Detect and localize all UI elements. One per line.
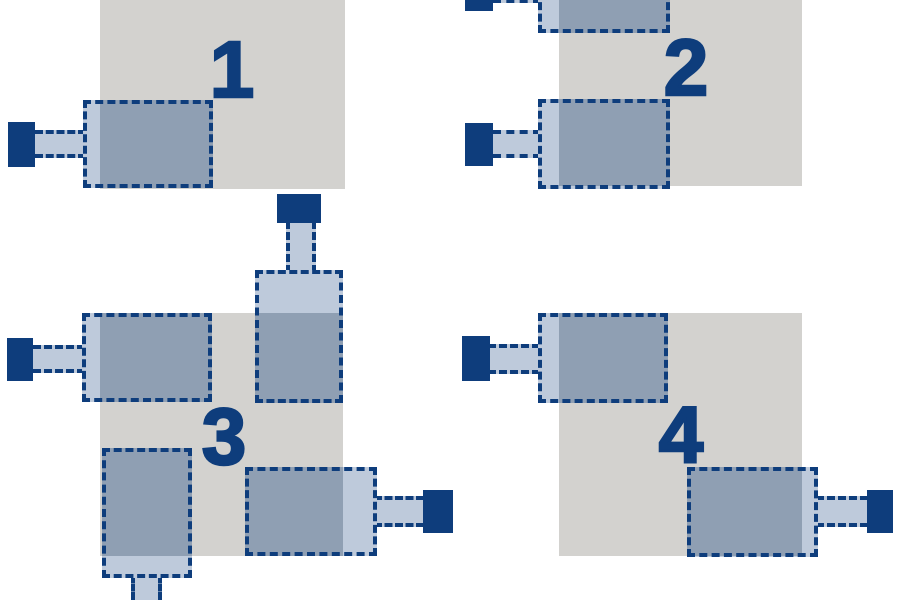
plug-connector bbox=[465, 123, 493, 166]
machine-dashed-border bbox=[538, 313, 668, 403]
plug-connector bbox=[465, 0, 493, 11]
placement-diagram: 1234 bbox=[0, 0, 900, 600]
plug-cable bbox=[286, 221, 316, 273]
panel-number: 1 bbox=[210, 30, 253, 110]
machine-outline bbox=[538, 313, 668, 403]
panel-number: 2 bbox=[664, 28, 707, 108]
plug-cable bbox=[493, 0, 541, 3]
plug-cable bbox=[488, 344, 540, 374]
machine-dashed-border bbox=[538, 99, 670, 189]
machine-outline bbox=[687, 467, 818, 557]
plug-cable bbox=[35, 130, 86, 158]
machine-outline bbox=[82, 313, 212, 402]
machine-outline bbox=[245, 467, 377, 556]
machine-dashed-border bbox=[245, 467, 377, 556]
plug-cable bbox=[493, 130, 541, 158]
plug-cable bbox=[374, 496, 424, 527]
plug-connector bbox=[277, 194, 321, 223]
machine-dashed-border bbox=[102, 448, 192, 578]
plug-connector bbox=[423, 490, 453, 533]
plug-connector bbox=[462, 336, 490, 381]
plug-connector bbox=[7, 338, 33, 381]
machine-dashed-border bbox=[687, 467, 818, 557]
panel-number: 3 bbox=[202, 397, 245, 477]
machine-outline bbox=[538, 0, 670, 33]
machine-outline bbox=[83, 100, 213, 188]
plug-cable bbox=[816, 496, 868, 527]
panel-number: 4 bbox=[659, 395, 702, 475]
plug-cable bbox=[131, 575, 162, 600]
machine-dashed-border bbox=[538, 0, 670, 33]
plug-connector bbox=[8, 122, 35, 167]
machine-outline bbox=[255, 270, 343, 403]
plug-connector bbox=[867, 490, 893, 533]
machine-dashed-border bbox=[82, 313, 212, 402]
machine-dashed-border bbox=[83, 100, 213, 188]
plug-cable bbox=[33, 345, 85, 373]
machine-outline bbox=[538, 99, 670, 189]
machine-outline bbox=[102, 448, 192, 578]
machine-dashed-border bbox=[255, 270, 343, 403]
